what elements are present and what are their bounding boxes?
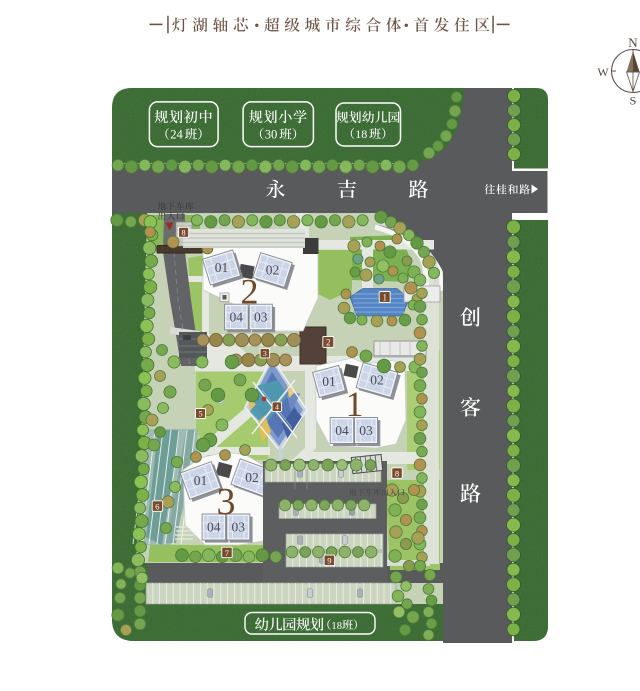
svg-text:03: 03	[359, 423, 373, 438]
svg-text:04: 04	[230, 310, 244, 325]
svg-text:5: 5	[198, 410, 202, 419]
svg-text:18: 18	[331, 621, 342, 632]
svg-text:9: 9	[327, 556, 331, 566]
svg-text:01: 01	[322, 374, 336, 389]
svg-text:3: 3	[217, 481, 236, 523]
svg-text:02: 02	[266, 263, 280, 278]
svg-text:24: 24	[170, 128, 183, 142]
svg-text:W: W	[597, 65, 609, 79]
svg-text:4: 4	[275, 403, 279, 412]
svg-text:8: 8	[182, 228, 186, 237]
svg-text:S: S	[630, 94, 637, 108]
svg-text:6: 6	[155, 501, 160, 511]
svg-text:8: 8	[395, 468, 399, 478]
svg-text:7: 7	[225, 548, 230, 558]
svg-text:04: 04	[335, 423, 349, 438]
svg-text:3: 3	[263, 349, 267, 358]
svg-text:03: 03	[254, 310, 268, 325]
svg-text:N: N	[628, 35, 638, 50]
svg-text:01: 01	[215, 260, 229, 275]
svg-text:01: 01	[194, 473, 208, 488]
svg-text:2: 2	[326, 337, 331, 347]
svg-text:02: 02	[370, 373, 384, 388]
svg-text:30: 30	[265, 128, 278, 142]
svg-text:18: 18	[355, 127, 367, 141]
svg-text:02: 02	[245, 470, 259, 485]
svg-text:2: 2	[241, 272, 259, 312]
svg-text:1: 1	[346, 384, 364, 424]
svg-text:1: 1	[382, 292, 387, 302]
